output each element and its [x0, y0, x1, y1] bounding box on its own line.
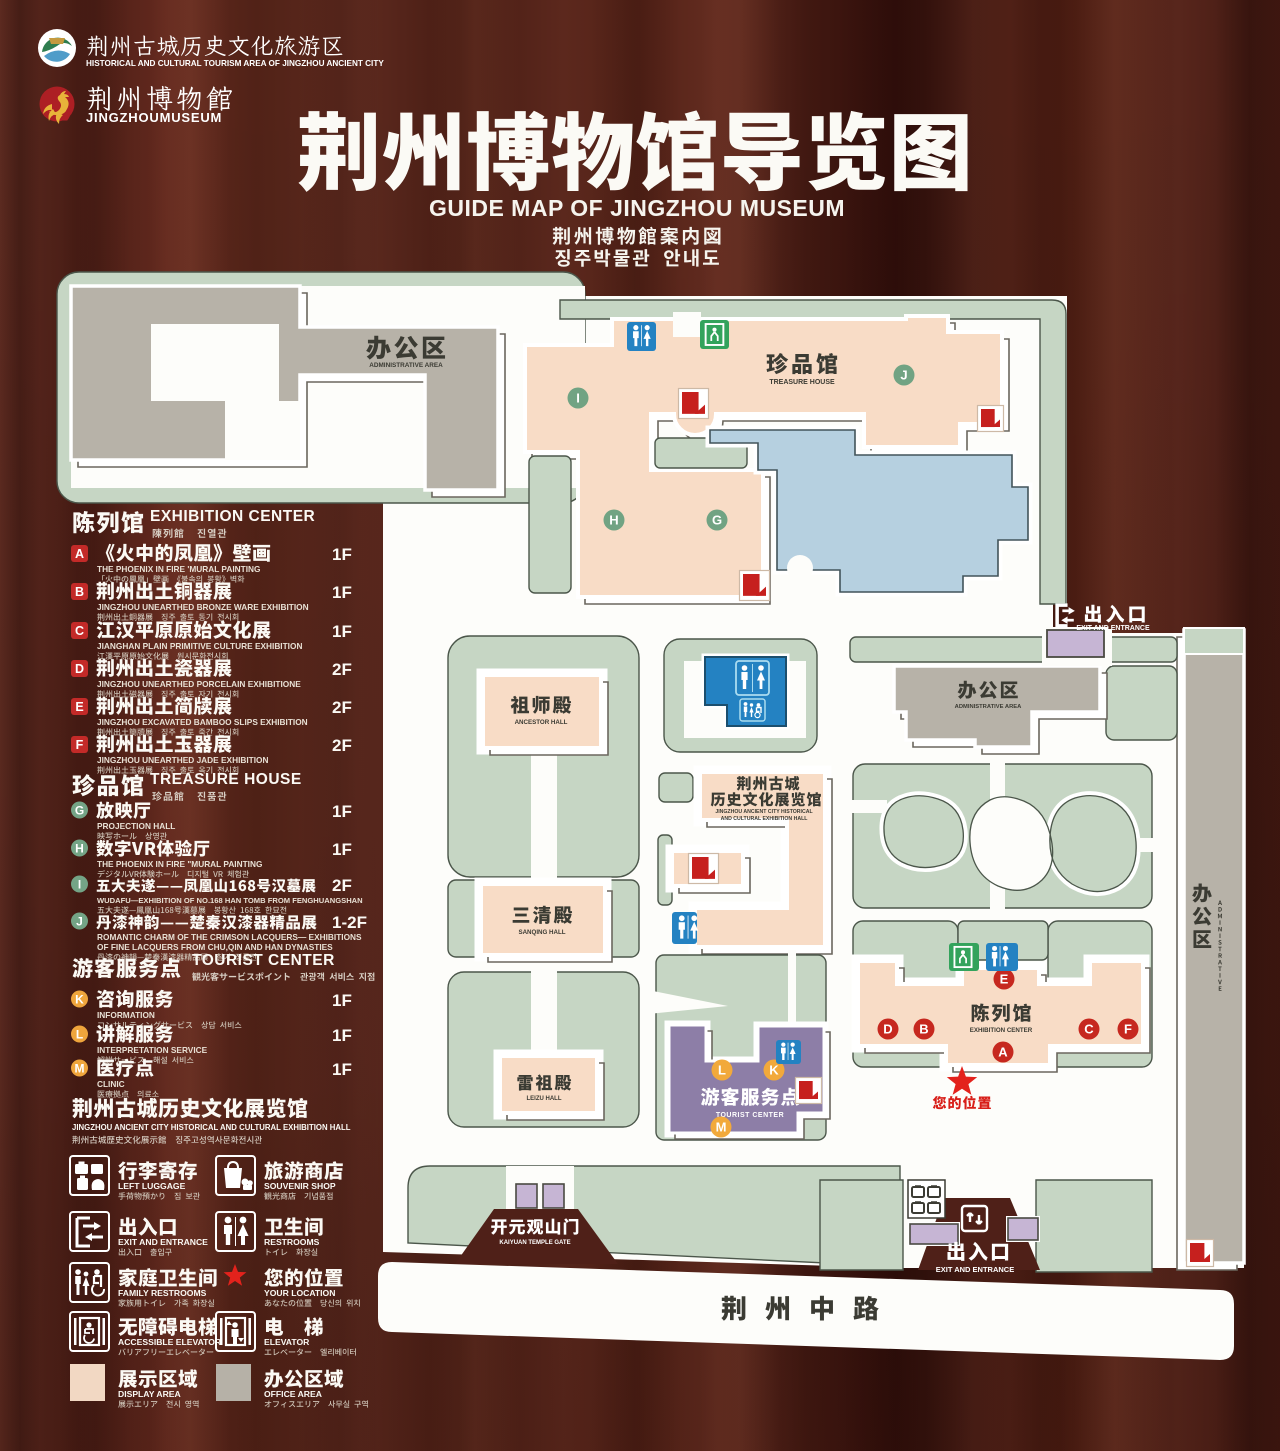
svg-text:THE PHOENIX IN FIRE "MURAL PAI: THE PHOENIX IN FIRE "MURAL PAINTING — [97, 859, 262, 869]
svg-text:D: D — [75, 662, 84, 676]
svg-text:ANCESTOR HALL: ANCESTOR HALL — [515, 719, 568, 726]
svg-text:EXHIBITION CENTER: EXHIBITION CENTER — [970, 1027, 1033, 1034]
svg-text:J: J — [76, 914, 83, 928]
svg-text:B: B — [75, 585, 84, 599]
svg-text:CLINIC: CLINIC — [97, 1079, 125, 1089]
svg-text:G: G — [75, 803, 84, 817]
svg-text:1F: 1F — [332, 545, 352, 564]
svg-text:LEIZU HALL: LEIZU HALL — [527, 1096, 562, 1102]
svg-text:F: F — [76, 738, 84, 752]
svg-text:EXIT AND ENTRANCE: EXIT AND ENTRANCE — [1076, 625, 1150, 632]
svg-text:I: I — [576, 391, 580, 406]
svg-text:FAMILY RESTROOMS: FAMILY RESTROOMS — [118, 1288, 207, 1298]
svg-text:1F: 1F — [332, 991, 352, 1010]
svg-text:2F: 2F — [332, 736, 352, 755]
svg-text:EXIT AND ENTRANCE: EXIT AND ENTRANCE — [936, 1265, 1014, 1274]
svg-text:JINGZHOU UNEARTHED PORCELAIN E: JINGZHOU UNEARTHED PORCELAIN EXHIBITIONE — [97, 679, 301, 689]
svg-text:L: L — [718, 1063, 726, 1078]
svg-text:K: K — [75, 992, 84, 1006]
svg-text:M: M — [716, 1120, 727, 1135]
svg-text:A: A — [998, 1045, 1008, 1060]
svg-text:ADMINISTRATIVE AREA: ADMINISTRATIVE AREA — [955, 704, 1022, 710]
svg-text:JIANGHAN PLAIN PRIMITIVE CULTU: JIANGHAN PLAIN PRIMITIVE CULTURE EXHIBIT… — [97, 641, 302, 651]
svg-text:DISPLAY AREA: DISPLAY AREA — [118, 1389, 181, 1399]
svg-text:LEFT LUGGAGE: LEFT LUGGAGE — [118, 1181, 186, 1191]
svg-text:ADMINISTRATIVE AREA: ADMINISTRATIVE AREA — [369, 362, 443, 369]
svg-text:YOUR LOCATION: YOUR LOCATION — [264, 1288, 335, 1298]
svg-text:JINGZHOU ANCIENT CITY HISTORIC: JINGZHOU ANCIENT CITY HISTORICAL — [715, 809, 813, 815]
svg-text:TOURIST CENTER: TOURIST CENTER — [192, 952, 335, 969]
svg-text:WUDAFU—EXHIBITION OF NO.168 HA: WUDAFU—EXHIBITION OF NO.168 HAN TOMB FRO… — [97, 896, 363, 905]
svg-text:2F: 2F — [332, 660, 352, 679]
svg-text:1-2F: 1-2F — [332, 913, 367, 932]
svg-text:I: I — [78, 877, 81, 891]
svg-text:B: B — [919, 1022, 928, 1037]
svg-text:M: M — [75, 1061, 85, 1075]
svg-text:JINGZHOU EXCAVATED BAMBOO SLIP: JINGZHOU EXCAVATED BAMBOO SLIPS EXHIBITI… — [97, 717, 308, 727]
svg-text:C: C — [75, 624, 84, 638]
svg-text:2F: 2F — [332, 698, 352, 717]
svg-text:1F: 1F — [332, 1026, 352, 1045]
svg-text:JINGZHOU ANCIENT CITY HISTORIC: JINGZHOU ANCIENT CITY HISTORICAL AND CUL… — [72, 1123, 351, 1132]
svg-text:TREASURE HOUSE: TREASURE HOUSE — [150, 771, 302, 788]
svg-text:JINGZHOU UNEARTHED JADE EXHIBI: JINGZHOU UNEARTHED JADE EXHIBITION — [97, 755, 268, 765]
svg-text:1F: 1F — [332, 802, 352, 821]
svg-text:AND CULTURAL EXHIBITION HALL: AND CULTURAL EXHIBITION HALL — [721, 816, 809, 822]
svg-text:HISTORICAL AND CULTURAL TOURIS: HISTORICAL AND CULTURAL TOURISM AREA OF … — [86, 59, 384, 68]
svg-text:K: K — [769, 1063, 779, 1078]
svg-text:JINGZHOU UNEARTHED BRONZE WARE: JINGZHOU UNEARTHED BRONZE WARE EXHIBITIO… — [97, 602, 309, 612]
svg-text:L: L — [76, 1027, 83, 1041]
svg-text:G: G — [712, 513, 722, 528]
svg-text:J: J — [900, 368, 907, 383]
svg-text:A: A — [75, 547, 84, 561]
svg-text:INTERPRETATION SERVICE: INTERPRETATION SERVICE — [97, 1045, 208, 1055]
svg-text:1F: 1F — [332, 622, 352, 641]
svg-text:C: C — [1084, 1022, 1094, 1037]
svg-text:JINGZHOUMUSEUM: JINGZHOUMUSEUM — [86, 110, 222, 125]
svg-text:1F: 1F — [332, 1060, 352, 1079]
svg-text:1F: 1F — [332, 583, 352, 602]
svg-text:TREASURE HOUSE: TREASURE HOUSE — [769, 379, 835, 386]
svg-text:E: E — [75, 700, 83, 714]
svg-text:E: E — [1000, 972, 1009, 987]
svg-text:D: D — [883, 1022, 892, 1037]
svg-text:ELEVATOR: ELEVATOR — [264, 1337, 310, 1347]
svg-text:SANQING HALL: SANQING HALL — [518, 929, 565, 936]
svg-text:THE PHOENIX IN FIRE 'MURAL PAI: THE PHOENIX IN FIRE 'MURAL PAINTING — [97, 564, 260, 574]
svg-text:ROMANTIC CHARM OF THE CRIMSON: ROMANTIC CHARM OF THE CRIMSON LACQUERS— … — [97, 932, 362, 942]
svg-text:INFORMATION: INFORMATION — [97, 1010, 155, 1020]
svg-text:EXIT AND ENTRANCE: EXIT AND ENTRANCE — [118, 1237, 208, 1247]
svg-text:PROJECTION HALL: PROJECTION HALL — [97, 821, 175, 831]
svg-text:ACCESSIBLE ELEVATOR: ACCESSIBLE ELEVATOR — [118, 1337, 222, 1347]
svg-text:1F: 1F — [332, 840, 352, 859]
svg-text:SOUVENIR SHOP: SOUVENIR SHOP — [264, 1181, 336, 1191]
svg-text:2F: 2F — [332, 876, 352, 895]
svg-text:H: H — [609, 513, 618, 528]
svg-text:F: F — [1124, 1022, 1132, 1037]
svg-text:EXHIBITION CENTER: EXHIBITION CENTER — [150, 508, 315, 525]
svg-text:OFFICE AREA: OFFICE AREA — [264, 1389, 322, 1399]
svg-text:OF FINE LACQUERS FROM CHU,QIN: OF FINE LACQUERS FROM CHU,QIN AND HAN DY… — [97, 942, 333, 952]
svg-text:GUIDE MAP OF JINGZHOU MUSEUM: GUIDE MAP OF JINGZHOU MUSEUM — [429, 195, 845, 221]
svg-text:RESTROOMS: RESTROOMS — [264, 1237, 320, 1247]
svg-text:H: H — [75, 841, 84, 855]
svg-text:KAIYUAN TEMPLE GATE: KAIYUAN TEMPLE GATE — [499, 1240, 570, 1246]
